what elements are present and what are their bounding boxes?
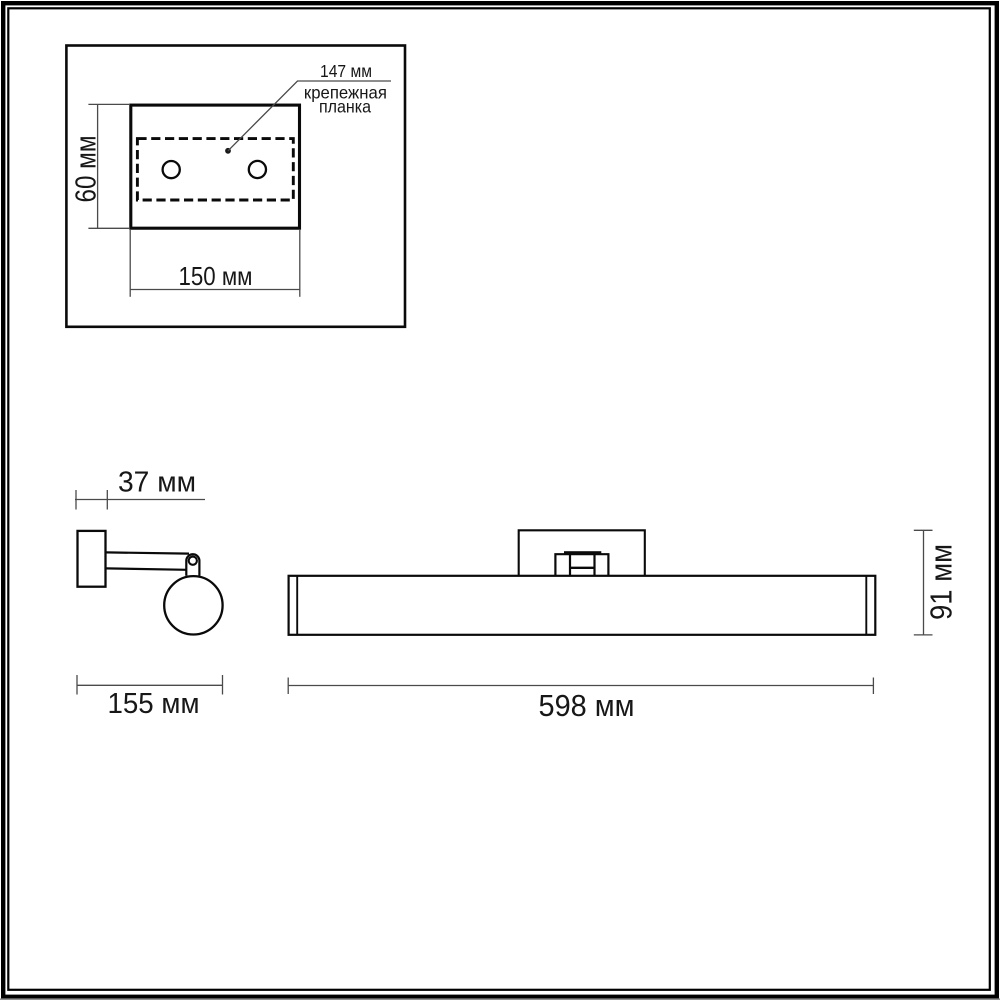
svg-text:155 мм: 155 мм — [108, 688, 200, 720]
svg-text:37 мм: 37 мм — [118, 467, 196, 499]
svg-text:598 мм: 598 мм — [539, 688, 635, 723]
svg-text:147 мм: 147 мм — [320, 61, 372, 81]
svg-text:150 мм: 150 мм — [179, 261, 253, 291]
svg-text:91 мм: 91 мм — [924, 544, 959, 620]
svg-text:планка: планка — [319, 96, 371, 116]
svg-text:60 мм: 60 мм — [70, 136, 102, 203]
